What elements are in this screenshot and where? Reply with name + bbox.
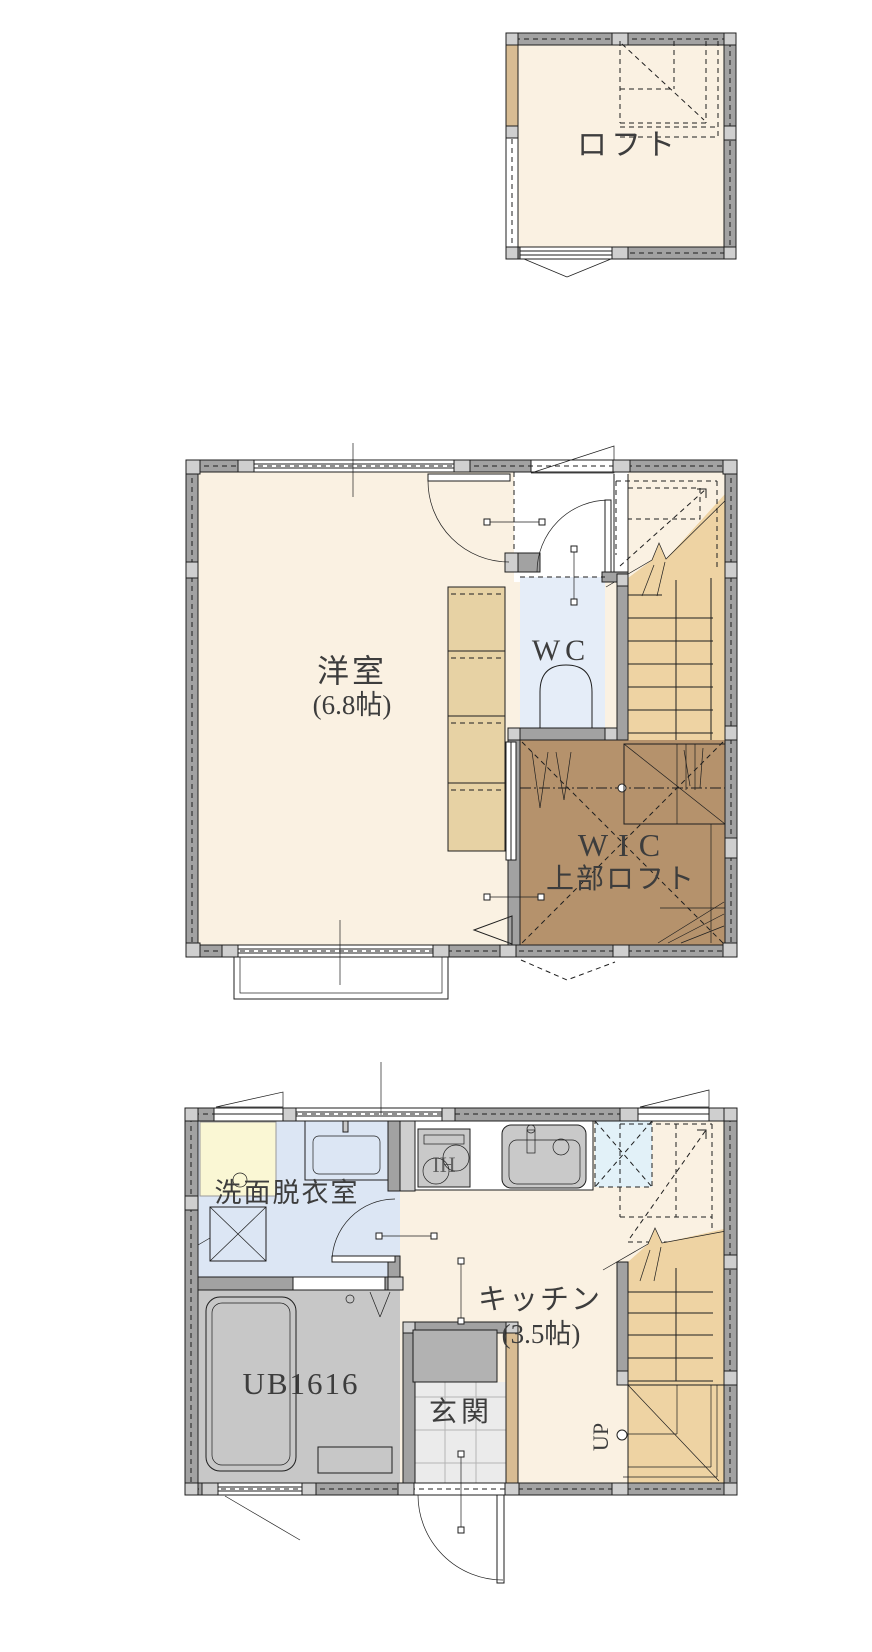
loft-plan: ロフト xyxy=(506,33,736,277)
wc-label: WC xyxy=(532,634,590,667)
entrance-label: 玄関 xyxy=(429,1396,493,1428)
kitchen-size: (3.5帖) xyxy=(502,1319,581,1349)
loft-wood-wall xyxy=(506,45,518,137)
floor-plan-page: ロフト xyxy=(0,0,872,1652)
washroom-label: 洗面脱衣室 xyxy=(215,1178,360,1208)
western-room-label: 洋室 xyxy=(317,653,387,689)
bath-label: UB1616 xyxy=(242,1366,359,1401)
stair-pole xyxy=(617,1430,627,1440)
kitchen-label: キッチン xyxy=(478,1284,602,1316)
washroom-door xyxy=(332,1256,395,1262)
window-swing-line xyxy=(225,1496,300,1540)
wic-label: WIC xyxy=(578,827,670,863)
kitchen-sink xyxy=(502,1125,586,1188)
shoe-cabinet xyxy=(413,1330,497,1382)
wic-sublabel: 上部ロフト xyxy=(546,863,696,895)
loft-window-swing xyxy=(524,259,567,277)
loft-label: ロフト xyxy=(577,129,679,162)
floor-plan-drawing: ロフト xyxy=(0,0,872,1652)
closet-shelves xyxy=(448,587,505,851)
bath-door-opening xyxy=(293,1277,385,1290)
first-floor-plan: UP xyxy=(185,1062,737,1583)
western-room-size: (6.8帖) xyxy=(313,690,392,720)
entrance-side-wall xyxy=(506,1333,518,1483)
stairs-up-label: UP xyxy=(588,1423,613,1451)
ih-label: IH xyxy=(432,1152,455,1177)
loft-window xyxy=(520,247,612,259)
second-floor-plan: 洋室 (6.8帖) WC WIC 上部ロフト xyxy=(186,443,737,999)
